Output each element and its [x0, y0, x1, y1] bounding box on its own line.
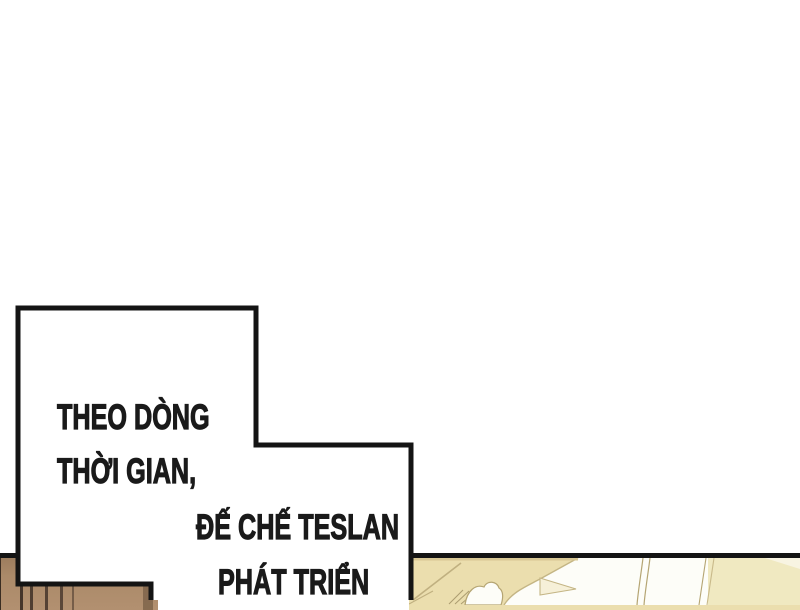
caption-line-1: THEO DÒNG	[57, 400, 210, 435]
caption-line-3: ĐẾ CHẾ TESLAN	[196, 510, 399, 545]
caption-line-4: PHÁT TRIỂN	[218, 565, 369, 600]
caption-box	[0, 0, 800, 600]
caption-line-2: THỜI GIAN,	[57, 454, 196, 489]
comic-page: THEO DÒNG THỜI GIAN, ĐẾ CHẾ TESLAN PHÁT …	[0, 0, 800, 600]
